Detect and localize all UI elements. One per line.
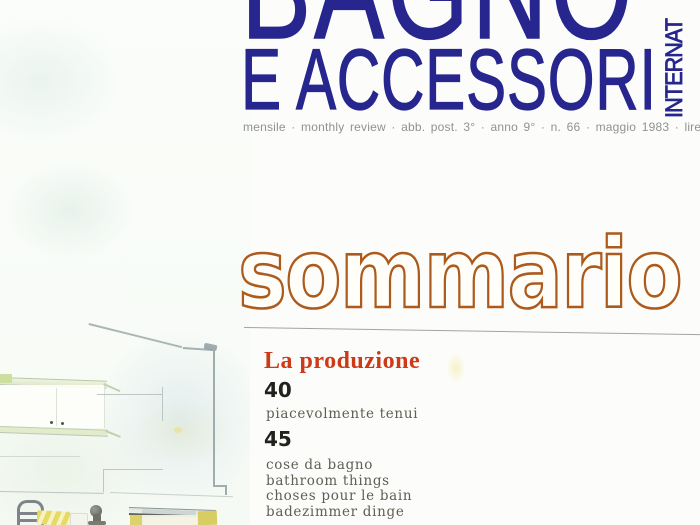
toc-entry-line: piacevolmente tenui xyxy=(266,407,418,423)
toc-entry-line: cose da bagno xyxy=(266,458,412,474)
toc-entry-title: piacevolmente tenui xyxy=(266,407,418,423)
wall-shelf-end-cap xyxy=(0,374,12,383)
toc-entry-page-number: 40 xyxy=(264,380,292,400)
section-title: La produzione xyxy=(264,349,420,373)
wall-pipe-foot-drop xyxy=(225,486,227,495)
bath-accessory-box xyxy=(70,513,88,525)
toc-entry-line: choses pour le bain xyxy=(266,489,412,505)
pencil-line xyxy=(97,394,163,395)
vanity-front-panel xyxy=(143,517,197,525)
magazine-contents-page: BAGNO E ACCESSORI INTERNAT mensile · mon… xyxy=(0,0,700,525)
cabinet-knob xyxy=(61,422,64,425)
pencil-line xyxy=(0,491,104,494)
cabinet-door-divider xyxy=(56,388,57,426)
paper-stain xyxy=(446,352,466,384)
pencil-line xyxy=(162,387,163,421)
striped-towels xyxy=(37,510,71,525)
magazine-title-vertical: INTERNAT xyxy=(663,19,687,118)
pencil-line xyxy=(103,469,163,470)
yellow-paint-speck xyxy=(174,427,182,433)
pencil-line xyxy=(110,492,233,497)
faucet-base xyxy=(88,521,106,525)
bathroom-sketch xyxy=(0,0,250,525)
wall-pipe xyxy=(213,349,215,487)
toc-entry-line: bathroom things xyxy=(266,474,412,490)
issue-info-line: mensile · monthly review · abb. post. 3°… xyxy=(243,120,700,134)
magazine-title-line2: E ACCESSORI xyxy=(241,37,657,123)
toc-entry-title: cose da bagno bathroom things choses pou… xyxy=(266,458,412,521)
sommario-heading: sommario xyxy=(238,226,681,322)
pencil-line xyxy=(0,456,80,457)
vanity-side-panel xyxy=(130,515,142,525)
vanity-side-panel xyxy=(198,511,217,525)
pencil-line xyxy=(103,469,104,492)
ceiling-corner-line xyxy=(89,323,183,348)
toc-entry-page-number: 45 xyxy=(264,429,292,449)
cabinet-knob xyxy=(50,421,53,424)
toc-entry-line: badezimmer dinge xyxy=(266,505,412,521)
